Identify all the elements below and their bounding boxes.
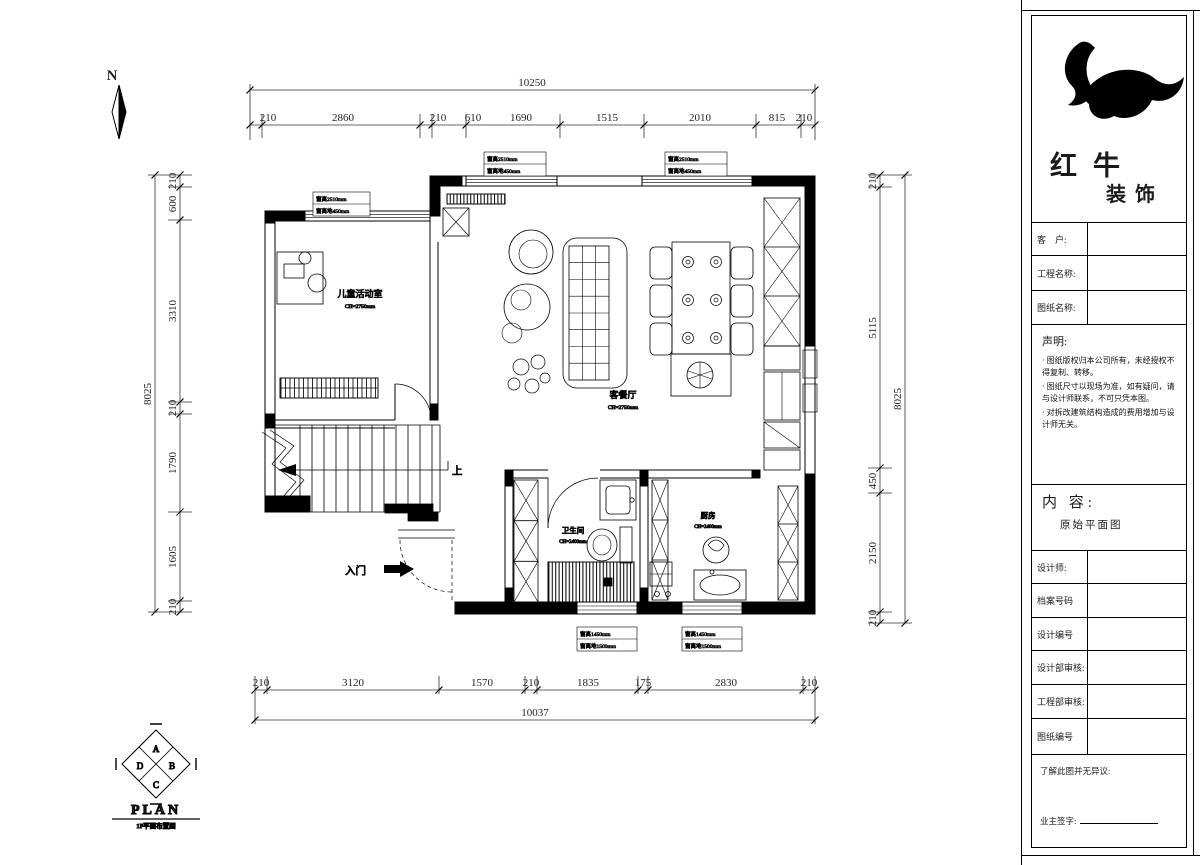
- dim-text: 610: [465, 112, 482, 124]
- floor-plan-canvas: N 10250 210 2860 210 610 1690 1515 2010 …: [0, 0, 1020, 865]
- dim-bottom-labels: 210 3120 1570 210 1835 175 2830 210 1003…: [253, 677, 818, 719]
- room-label-living: 客餐厅: [609, 389, 636, 400]
- quadrant-letter: B: [169, 761, 175, 771]
- content-block: 内 容: 原始平面图: [1032, 485, 1186, 551]
- kitchen: 厨房 CH=2400mm: [650, 480, 798, 600]
- dim-text: 3120: [342, 677, 365, 689]
- file-number-label: 档案号码: [1032, 584, 1088, 617]
- window-label-text: 窗离地450mm: [668, 167, 702, 175]
- window-label-text: 窗高2510mm: [668, 155, 699, 163]
- kitchen-cabinet-left: [652, 480, 668, 600]
- row-design-review: 设计部审核:: [1032, 651, 1186, 685]
- design-review-label: 设计部审核:: [1032, 651, 1088, 684]
- sofa-group: 客餐厅 CH=2750mm: [502, 230, 639, 411]
- dim-text: 1515: [596, 112, 619, 124]
- kitchen-cabinet-right: [778, 486, 798, 600]
- dim-text: 175: [635, 677, 652, 689]
- right-cabinets: [764, 198, 800, 470]
- dim-text: 210: [430, 112, 447, 124]
- statement-item: · 对拆改建筑结构造成的费用增加与设计师无关。: [1042, 407, 1178, 430]
- dim-text: 1690: [510, 112, 533, 124]
- window-label-text: 窗离地1500mm: [685, 642, 722, 650]
- room-note-bath: CH=2400mm: [559, 540, 587, 545]
- panel-bottom-rule: [1022, 855, 1200, 856]
- armchair: [509, 230, 553, 274]
- window-label-text: 窗高2510mm: [487, 155, 518, 163]
- dim-text: 5115: [867, 317, 879, 339]
- row-engineering-review: 工程部审核:: [1032, 685, 1186, 719]
- dim-text: 210: [801, 677, 818, 689]
- dim-text: 210: [260, 112, 277, 124]
- signature-note: 了解此图并无异议:: [1040, 765, 1178, 777]
- floor-plant: [508, 355, 550, 393]
- dim-right-labels: 210 5115 450 2150 210 8025: [867, 172, 904, 626]
- bath-door: [548, 478, 598, 528]
- stairs-up-label: 上: [452, 465, 463, 477]
- dim-text: 1790: [167, 452, 179, 475]
- project-label: 工程名称:: [1032, 256, 1088, 290]
- signature-block: 了解此图并无异议: 业主签字:: [1032, 755, 1186, 847]
- shoe-cabinet: [443, 208, 469, 236]
- window-bottom-2: [682, 602, 742, 614]
- dim-text: 10250: [518, 77, 546, 89]
- design-number-label: 设计编号: [1032, 618, 1088, 650]
- room-label-children: 儿童活动室: [337, 288, 382, 299]
- room-note-kitchen: CH=2400mm: [694, 525, 722, 530]
- row-design-number: 设计编号: [1032, 618, 1186, 651]
- dim-text: 2830: [715, 677, 738, 689]
- row-file-number: 档案号码: [1032, 584, 1186, 618]
- shower-area: [548, 562, 634, 602]
- dim-text: 815: [769, 112, 786, 124]
- room-note-living: CH=2750mm: [608, 405, 639, 411]
- statement-item: · 图纸版权归本公司所有，未经授权不得复制、转移。: [1042, 355, 1178, 378]
- dim-text: 8025: [142, 383, 154, 406]
- customer-label: 客 户:: [1032, 223, 1088, 255]
- window-label-text: 窗离地450mm: [487, 167, 521, 175]
- plan-subtitle: 1F平面布置图: [136, 821, 175, 830]
- north-arrow-icon: N: [107, 68, 126, 139]
- window-label-text: 窗离地1500mm: [580, 642, 617, 650]
- window-label-text: 窗离地450mm: [316, 207, 350, 215]
- logo-cell: 红牛 装饰: [1032, 16, 1186, 223]
- dim-text: 450: [867, 472, 879, 489]
- field-customer: 客 户:: [1032, 223, 1186, 256]
- brand-name-2: 装饰: [1106, 178, 1164, 207]
- toilet: [587, 527, 632, 563]
- door-children-room: [395, 384, 431, 420]
- panel-right-rule: [1193, 10, 1194, 856]
- dining-set: [650, 242, 753, 396]
- hall-cabinets: [443, 194, 505, 236]
- dim-text: 600: [167, 195, 179, 212]
- dim-top-labels: 10250 210 2860 210 610 1690 1515 2010 81…: [260, 77, 813, 124]
- room-note-children: CH=2750mm: [345, 304, 376, 310]
- designer-label: 设计师:: [1032, 551, 1088, 583]
- dim-text: 2010: [689, 112, 712, 124]
- brand-logo-icon: [1032, 26, 1188, 156]
- counter-box: [650, 562, 672, 597]
- entry: 入门: [345, 512, 455, 602]
- content-value: 原始平面图: [1060, 517, 1178, 532]
- statement-item: · 图纸尺寸以现场为准，如有疑问，请与设计师联系，不可只凭本图。: [1042, 381, 1178, 404]
- engineering-review-label: 工程部审核:: [1032, 685, 1088, 718]
- panel-top-rule: [1022, 10, 1200, 11]
- statement-block: 声明: · 图纸版权归本公司所有，未经授权不得复制、转移。 · 图纸尺寸以现场为…: [1032, 325, 1186, 485]
- dim-text: 210: [253, 677, 270, 689]
- window-label-text: 窗高1450mm: [685, 630, 716, 638]
- dim-text: 210: [167, 172, 179, 189]
- field-project: 工程名称:: [1032, 256, 1186, 291]
- quadrant-letter: C: [153, 780, 159, 790]
- bathroom: 卫生间 CH=2400mm: [514, 478, 636, 602]
- dim-text: 210: [523, 677, 540, 689]
- wardrobe-column: [514, 480, 538, 602]
- field-drawing: 图纸名称:: [1032, 291, 1186, 325]
- title-block: 红牛 装饰 客 户: 工程名称: 图纸名称: 声明: · 图纸版权归本公司所有，…: [1031, 15, 1187, 848]
- room-label-bath: 卫生间: [562, 525, 585, 535]
- drawing-sheet: N 10250 210 2860 210 610 1690 1515 2010 …: [0, 0, 1200, 865]
- statement-title: 声明:: [1042, 333, 1178, 349]
- dim-text: 8025: [892, 388, 904, 411]
- row-sheet-number: 图纸编号: [1032, 719, 1186, 755]
- dim-text: 1570: [471, 677, 494, 689]
- window-label-text: 窗高2510mm: [316, 195, 347, 203]
- kitchen-sink: [694, 570, 746, 600]
- window-label-text: 窗高1450mm: [580, 630, 611, 638]
- dim-text: 1835: [577, 677, 600, 689]
- window-label-boxes: 窗高2510mm 窗离地450mm 窗高2510mm 窗离地450mm 窗高25…: [313, 152, 742, 651]
- dim-text: 2860: [332, 112, 355, 124]
- drawing-label: 图纸名称:: [1032, 291, 1088, 324]
- quadrant-letter: D: [137, 761, 144, 771]
- signature-line: [1080, 813, 1158, 824]
- side-cabinet: [671, 354, 731, 396]
- dim-text: 3310: [167, 300, 179, 323]
- row-designer: 设计师:: [1032, 551, 1186, 584]
- washbasin: [600, 480, 636, 520]
- window-top-1: [466, 176, 557, 186]
- window-top-2: [642, 176, 752, 186]
- dim-text: 10037: [521, 707, 549, 719]
- room-label-kitchen: 厨房: [701, 510, 716, 520]
- dim-text: 2150: [867, 542, 879, 565]
- entry-arrow-icon: [384, 561, 414, 577]
- children-room: 儿童活动室 CH=2750mm: [277, 252, 383, 398]
- dim-text: 210: [167, 399, 179, 416]
- content-label: 内 容:: [1042, 491, 1178, 512]
- dim-text: 210: [796, 112, 813, 124]
- window-label: 窗高2510mm 窗离地450mm: [313, 192, 370, 216]
- window-label: 窗高1450mm 窗离地1500mm: [682, 627, 742, 651]
- dim-text: 210: [867, 172, 879, 189]
- north-label: N: [107, 68, 118, 84]
- radiator: [280, 378, 378, 398]
- dim-text: 1605: [167, 546, 179, 569]
- water-heater: [703, 537, 729, 563]
- window-label: 窗高1450mm 窗离地1500mm: [577, 627, 637, 651]
- owner-signature-label: 业主签字:: [1040, 816, 1076, 826]
- plan-title: PLAN: [131, 803, 181, 818]
- plan-symbol: A B C D PLAN 1F平面布置图: [112, 724, 200, 830]
- sheet-number-label: 图纸编号: [1032, 719, 1088, 754]
- dim-left-labels: 210 600 3310 210 1790 1605 210 8025: [142, 172, 179, 615]
- title-block-panel: 红牛 装饰 客 户: 工程名称: 图纸名称: 声明: · 图纸版权归本公司所有，…: [1021, 0, 1200, 865]
- window-label: 窗高2510mm 窗离地450mm: [665, 152, 727, 176]
- dim-text: 210: [867, 609, 879, 626]
- entry-label: 入门: [345, 564, 366, 577]
- dim-text: 210: [167, 598, 179, 615]
- quadrant-letter: A: [153, 744, 160, 754]
- window-label: 窗高2510mm 窗离地450mm: [484, 152, 546, 176]
- window-bottom-1: [577, 602, 637, 614]
